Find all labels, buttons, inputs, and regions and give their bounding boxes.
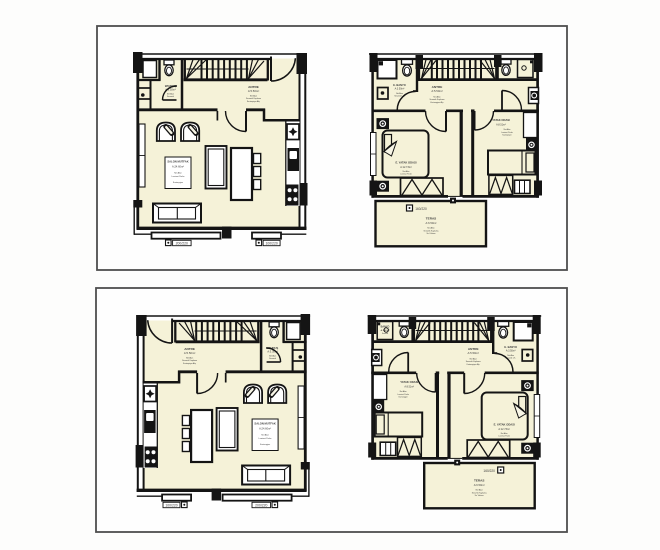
svg-text:Kartonpiyer: Kartonpiyer — [173, 181, 184, 184]
svg-text:Seramik Kaplama: Seramik Kaplama — [424, 229, 440, 232]
svg-text:Kartonpiyer Alçı: Kartonpiyer Alçı — [430, 101, 444, 104]
svg-text:BANYO: BANYO — [381, 326, 390, 329]
svg-text:SALON MUTFAK: SALON MUTFAK — [254, 422, 275, 426]
svg-text:YATAK ODASI: YATAK ODASI — [400, 380, 418, 384]
svg-text:Net Alan: Net Alan — [250, 94, 257, 97]
svg-text:Net Alan: Net Alan — [186, 356, 193, 359]
svg-text:Kartonpiyer: Kartonpiyer — [502, 134, 512, 137]
svg-text:Seramik: Seramik — [382, 332, 388, 335]
svg-text:Laminat Parke: Laminat Parke — [259, 437, 273, 440]
svg-text:Seramik Kaplama: Seramik Kaplama — [472, 491, 488, 494]
svg-text:160/220: 160/220 — [483, 469, 495, 473]
svg-text:Net Alan: Net Alan — [504, 128, 511, 131]
svg-text:A:6.50m²: A:6.50m² — [426, 221, 437, 225]
svg-text:Seramik Kaplama: Seramik Kaplama — [430, 98, 446, 101]
svg-text:Seramik Kaplama: Seramik Kaplama — [182, 359, 198, 362]
svg-text:Laminat Parke: Laminat Parke — [172, 175, 186, 178]
svg-text:Net Alan: Net Alan — [400, 390, 407, 393]
svg-text:A:1.80m²: A:1.80m² — [381, 329, 390, 332]
svg-text:Net Alan: Net Alan — [433, 95, 440, 98]
svg-text:A:5.50m²: A:5.50m² — [184, 351, 195, 355]
svg-text:Net Alan: Net Alan — [427, 227, 434, 230]
svg-text:A:6.50m²: A:6.50m² — [474, 483, 485, 487]
svg-text:A:3.50m²: A:3.50m² — [506, 350, 516, 353]
svg-text:A:3.50m²: A:3.50m² — [395, 88, 405, 91]
svg-text:Laminat Parke: Laminat Parke — [501, 131, 513, 134]
svg-text:A:8.51m²: A:8.51m² — [496, 123, 506, 126]
svg-text:Net Alan: Net Alan — [507, 354, 514, 357]
svg-text:200/220: 200/220 — [176, 241, 188, 245]
svg-text:Laminat Parke: Laminat Parke — [400, 172, 412, 175]
svg-text:100/220: 100/220 — [165, 503, 177, 507]
svg-text:Net Alan: Net Alan — [261, 434, 269, 437]
svg-text:TERAS: TERAS — [474, 479, 485, 483]
svg-text:100/220: 100/220 — [265, 241, 277, 245]
svg-text:E. BANYO: E. BANYO — [393, 83, 406, 87]
svg-text:Seramik: Seramik — [269, 357, 276, 360]
svg-text:Kartonpiyer: Kartonpiyer — [260, 443, 271, 446]
svg-text:Laminat Parke: Laminat Parke — [498, 434, 510, 437]
svg-text:Net Alan: Net Alan — [174, 172, 182, 175]
svg-text:Kartonpiyer Alçı: Kartonpiyer Alçı — [467, 363, 481, 366]
svg-text:Su Yalıtımı: Su Yalıtımı — [426, 232, 436, 235]
svg-text:Kartonpiyer: Kartonpiyer — [399, 396, 409, 399]
svg-text:Seramik Kaplama: Seramik Kaplama — [466, 360, 482, 363]
svg-text:200/220: 200/220 — [255, 503, 267, 507]
svg-text:A:24.60m²: A:24.60m² — [259, 426, 271, 430]
svg-text:Kartonpiyer Alçı: Kartonpiyer Alçı — [247, 100, 261, 103]
svg-text:TERAS: TERAS — [426, 217, 437, 221]
svg-text:A:8.51m²: A:8.51m² — [404, 385, 414, 388]
svg-text:E. YATAK ODASI: E. YATAK ODASI — [494, 423, 515, 427]
svg-text:Net Alan: Net Alan — [403, 170, 410, 173]
svg-text:E. YATAK ODASI: E. YATAK ODASI — [395, 161, 416, 165]
svg-text:A:24.60m²: A:24.60m² — [172, 164, 184, 168]
svg-text:160/220: 160/220 — [415, 207, 427, 211]
svg-text:Laminat Parke: Laminat Parke — [397, 393, 409, 396]
svg-text:Seramik: Seramik — [167, 95, 174, 98]
svg-text:Net Alan: Net Alan — [476, 489, 483, 492]
svg-text:YATAK ODASI: YATAK ODASI — [492, 118, 510, 122]
svg-text:E. BANYO: E. BANYO — [504, 345, 517, 349]
svg-text:Kartonpiyer Alçı: Kartonpiyer Alçı — [183, 362, 197, 365]
svg-text:SALON MUTFAK: SALON MUTFAK — [167, 160, 188, 164]
svg-text:A:5.50m²: A:5.50m² — [248, 89, 259, 93]
svg-text:A:5.50m²: A:5.50m² — [431, 89, 442, 93]
svg-text:Seramik Kaplama: Seramik Kaplama — [246, 97, 262, 100]
svg-text:Net Alan: Net Alan — [470, 357, 477, 360]
svg-text:A:12.73m²: A:12.73m² — [498, 428, 510, 431]
svg-text:Net Alan: Net Alan — [396, 92, 403, 95]
svg-text:Su Yalıtımı: Su Yalıtımı — [475, 494, 485, 497]
svg-text:A:12.73m²: A:12.73m² — [400, 166, 412, 169]
svg-text:Net Alan: Net Alan — [501, 432, 508, 435]
svg-text:A:5.50m²: A:5.50m² — [468, 351, 479, 355]
